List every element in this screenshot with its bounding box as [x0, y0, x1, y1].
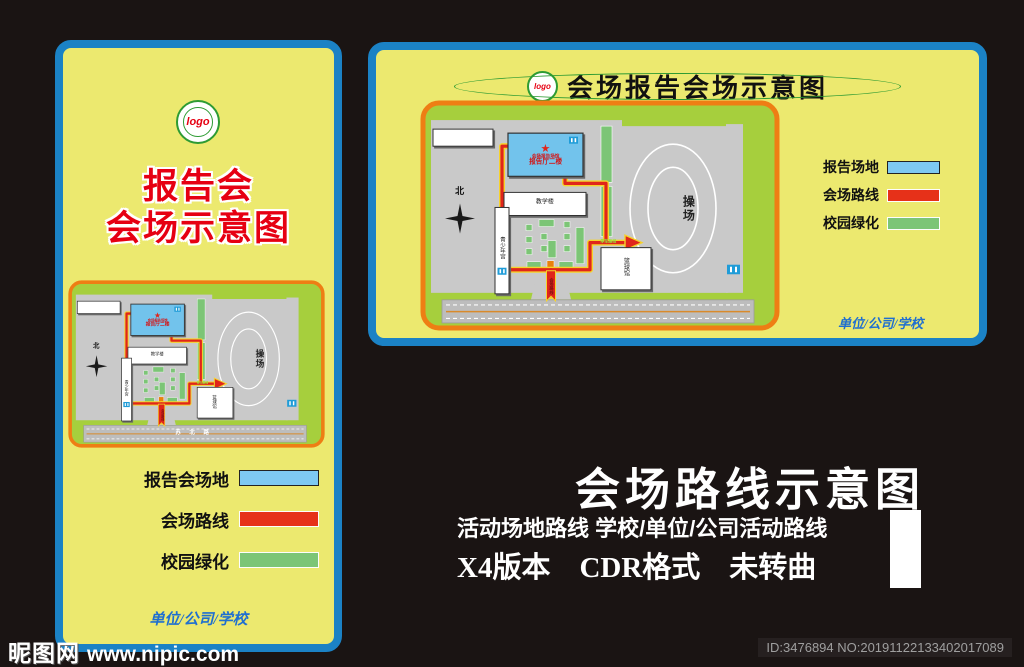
gate-building: [77, 301, 120, 313]
legend-row-venue: 报告场地: [800, 157, 940, 177]
venue-swatch: [239, 470, 319, 486]
legend-row-greenery: 校园绿化: [81, 548, 319, 572]
design-preview-canvas: logo 报告会 会场示意图: [0, 0, 1024, 667]
route-swatch: [239, 511, 319, 527]
right-poster-panel: logo 会场报告会场示意图: [368, 42, 987, 346]
campus-map-large: ★ 北 会场报告场: [420, 100, 780, 331]
campus-map-graphic: ★: [68, 280, 325, 448]
basketball-hall-label: 篮球馆: [622, 258, 629, 277]
venue-route-label: 会场路线: [160, 409, 163, 421]
parking-route-label: 停车路线: [197, 382, 209, 385]
promo-subline: 活动场地路线 学校/单位/公司活动路线: [457, 511, 827, 543]
promo-spec-line: X4版本 CDR格式 未转曲: [457, 544, 816, 586]
image-id-tag: ID:3476894 NO:20191122133402017089: [758, 638, 1012, 657]
basketball-hall-label: 篮球馆: [212, 395, 217, 408]
organization-signature: 单位/公司/学校: [838, 313, 923, 332]
map-legend: 报告场地 会场路线 校园绿化: [800, 157, 940, 241]
logo-text: logo: [534, 82, 551, 91]
teaching-building-label: 教学楼: [151, 353, 164, 358]
flagpole-marker: [547, 261, 554, 268]
legend-row-venue: 报告会场地: [81, 466, 319, 490]
greenery-swatch: [239, 552, 319, 568]
legend-label: 校园绿化: [161, 548, 229, 573]
campus-map-small: ★ 北 会场报告场: [68, 280, 325, 448]
legend-label: 会场路线: [823, 185, 879, 205]
flagpole-marker: [159, 397, 164, 402]
parking-route-label: 停车路线: [600, 240, 616, 245]
report-hall-label-line2: 报告厅二楼: [529, 159, 562, 167]
toilet-icon: [498, 268, 507, 275]
legend-row-greenery: 校园绿化: [800, 213, 940, 233]
greenery-swatch: [887, 217, 940, 230]
toilet-icon: [727, 265, 740, 275]
legend-row-route: 会场路线: [800, 185, 940, 205]
teaching-building-label: 教学楼: [536, 200, 554, 207]
watermark-site-name: 昵图网: [8, 634, 80, 667]
watermark: 昵图网 www.nipic.com: [8, 634, 239, 667]
left-poster-panel: logo 报告会 会场示意图: [55, 40, 342, 652]
route-swatch: [887, 189, 940, 202]
poster-title-line2: 会场示意图: [63, 200, 334, 251]
toilet-icon: [123, 402, 129, 407]
north-label: 北: [93, 343, 99, 350]
legend-label: 校园绿化: [823, 213, 879, 233]
watermark-site-url: www.nipic.com: [87, 643, 239, 667]
promo-headline: 会场路线示意图: [563, 453, 937, 518]
gate-building: [433, 129, 493, 146]
youth-palace-label: 青少年宫: [124, 379, 129, 395]
logo-badge: logo: [527, 71, 558, 102]
promo-white-bar: [890, 510, 921, 588]
youth-palace-label: 青少年宫: [499, 237, 505, 259]
legend-label: 报告场地: [823, 157, 879, 177]
playground-label: 操场: [681, 195, 695, 223]
legend-label: 报告会场地: [144, 466, 229, 491]
campus-map-graphic: ★: [420, 100, 780, 331]
organization-signature: 单位/公司/学校: [63, 608, 334, 629]
logo-badge: logo: [176, 100, 220, 144]
north-label: 北: [455, 186, 464, 196]
map-legend: 报告会场地 会场路线 校园绿化: [81, 466, 319, 589]
toilet-icon: [174, 307, 180, 312]
playground-label: 操场: [254, 349, 264, 369]
venue-swatch: [887, 161, 940, 174]
logo-text: logo: [186, 116, 209, 128]
street: [442, 300, 754, 323]
legend-label: 会场路线: [161, 507, 229, 532]
toilet-icon: [287, 400, 296, 407]
venue-route-label: 会场路线: [549, 278, 554, 295]
report-hall-label-line2: 报告厅二楼: [146, 323, 170, 328]
toilet-icon: [569, 137, 578, 144]
report-hall-label: 会场报告场馆 报告厅二楼: [529, 154, 562, 167]
road-name-label: 苏 北 路: [175, 430, 212, 436]
report-hall-label: 会场报告场馆 报告厅二楼: [146, 319, 170, 328]
legend-row-route: 会场路线: [81, 507, 319, 531]
